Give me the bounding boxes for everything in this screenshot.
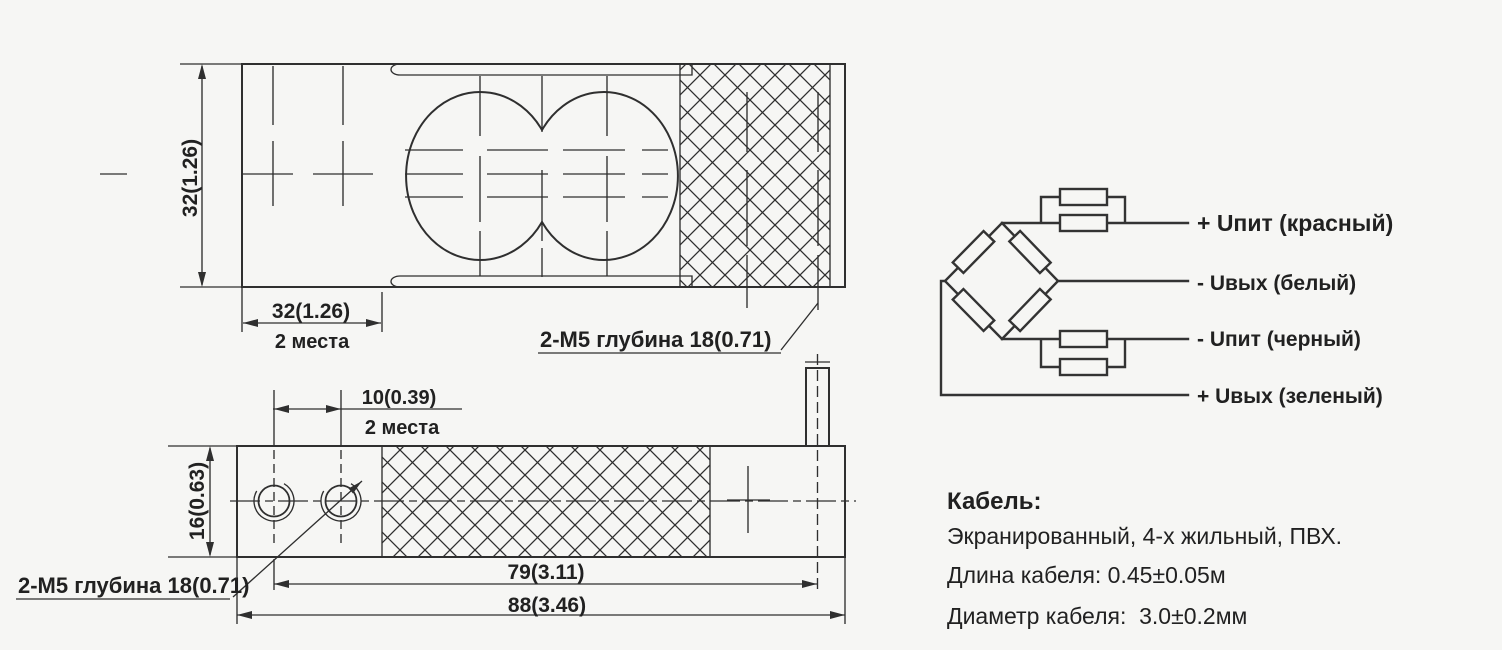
top-view-edge-dim-note: 2 места bbox=[275, 331, 350, 353]
top-view-drawing: 32(1.26) 32(1.26) 2 места 2-М5 глубина 1… bbox=[100, 64, 845, 353]
side-view-hole-spacing-dim: 10(0.39) bbox=[362, 387, 437, 409]
compensation-resistor bbox=[1060, 189, 1107, 205]
compensation-resistor bbox=[1060, 359, 1107, 375]
side-view-length-dim: 88(3.46) bbox=[508, 594, 586, 617]
bridge-wire-label-excitation-minus: - Uпит (черный) bbox=[1197, 328, 1361, 351]
cable-diameter-line: Диаметр кабеля: 3.0±0.2мм bbox=[947, 603, 1247, 629]
strain-gauge-resistor bbox=[953, 289, 995, 331]
cable-length-line: Длина кабеля: 0.45±0.05м bbox=[947, 562, 1226, 588]
center-mark bbox=[727, 466, 770, 533]
side-view-cable-position-dim: 79(3.11) bbox=[507, 561, 584, 584]
compensation-resistor bbox=[1060, 215, 1107, 231]
cable-spec-title: Кабель: bbox=[947, 488, 1041, 515]
side-view-height-dim: 16(0.63) bbox=[186, 462, 209, 540]
cable-spec: Кабель: Экранированный, 4-х жильный, ПВХ… bbox=[947, 488, 1342, 629]
strain-gauge-resistor bbox=[953, 231, 995, 273]
top-view-thread-callout: 2-М5 глубина 18(0.71) bbox=[540, 327, 771, 352]
top-view-edge-dim: 32(1.26) bbox=[272, 300, 350, 323]
load-cell-drawing: 32(1.26) 32(1.26) 2 места 2-М5 глубина 1… bbox=[0, 0, 1502, 650]
strain-gauge-resistor bbox=[1009, 231, 1050, 273]
top-view-height-dim: 32(1.26) bbox=[179, 139, 202, 217]
bridge-wire-label-signal-plus: + Uвых (зеленый) bbox=[1197, 385, 1383, 408]
bridge-circuit: + Uпит (красный) - Uвых (белый) - Uпит (… bbox=[941, 189, 1393, 408]
top-view-crosshatch bbox=[680, 64, 830, 287]
bridge-diamond bbox=[945, 223, 1058, 339]
boot-edge-band-top bbox=[391, 64, 692, 75]
boot-edge-band-bottom bbox=[391, 276, 692, 287]
drawing-canvas: 32(1.26) 32(1.26) 2 места 2-М5 глубина 1… bbox=[0, 0, 1502, 650]
side-view-drawing: 10(0.39) 2 места 16(0.63) 79(3.11) 88(3.… bbox=[16, 354, 856, 624]
side-view-thread-callout: 2-М5 глубина 18(0.71) bbox=[18, 573, 249, 598]
strain-gauge-resistor bbox=[1009, 289, 1050, 331]
bridge-wire-label-excitation-plus: + Uпит (красный) bbox=[1197, 210, 1393, 236]
cable-type-line: Экранированный, 4-х жильный, ПВХ. bbox=[947, 523, 1342, 549]
compensation-resistor bbox=[1060, 331, 1107, 347]
bridge-wire-label-signal-minus: - Uвых (белый) bbox=[1197, 272, 1356, 295]
side-view-hole-spacing-note: 2 места bbox=[365, 417, 440, 439]
